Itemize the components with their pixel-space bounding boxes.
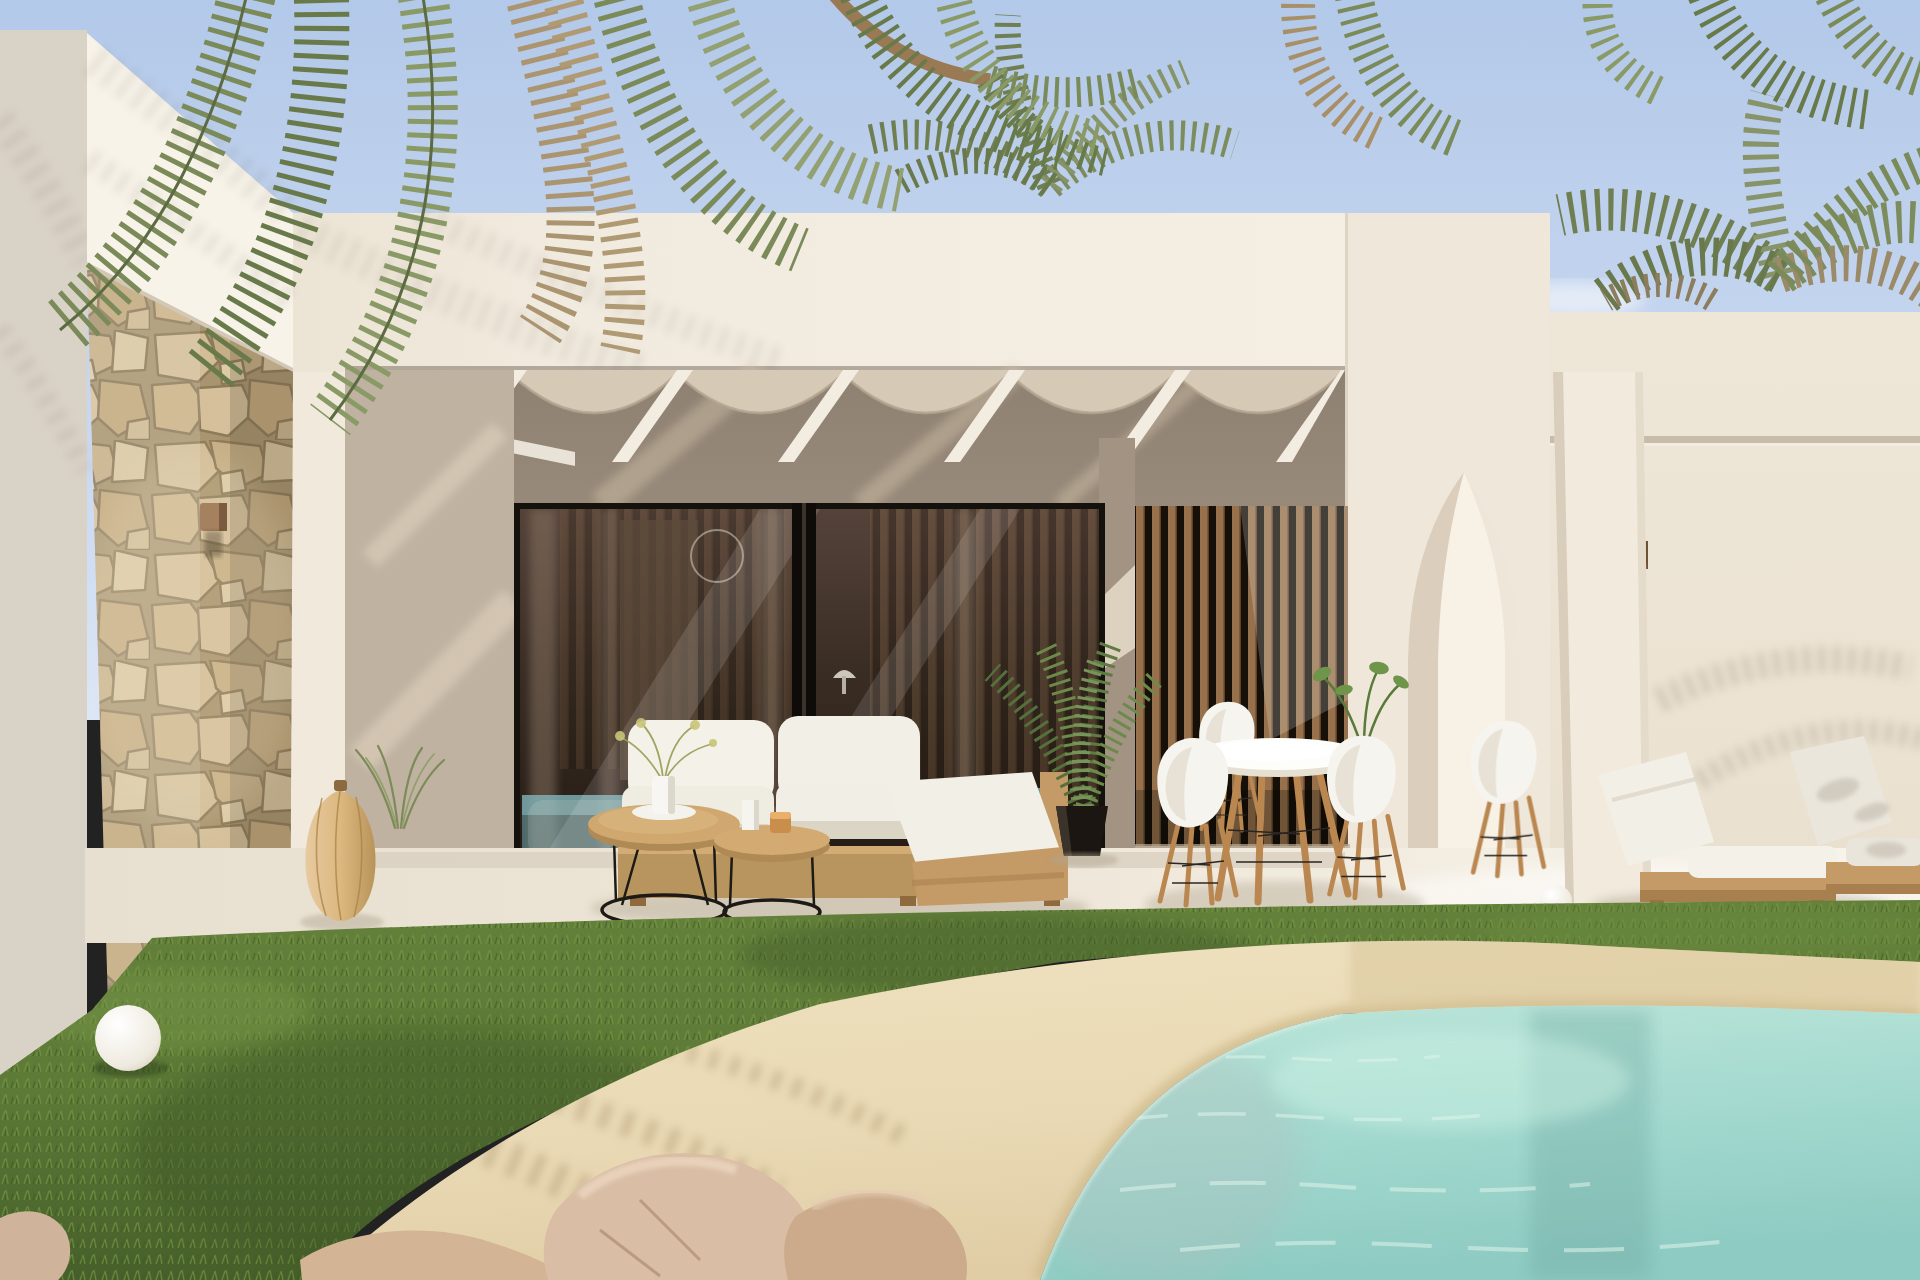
scene-canvas — [0, 0, 1920, 1280]
porch-left-wall — [345, 370, 514, 862]
facade-band — [290, 213, 1345, 373]
villa-render — [0, 0, 1920, 1280]
chaise-cushion — [886, 772, 1064, 906]
